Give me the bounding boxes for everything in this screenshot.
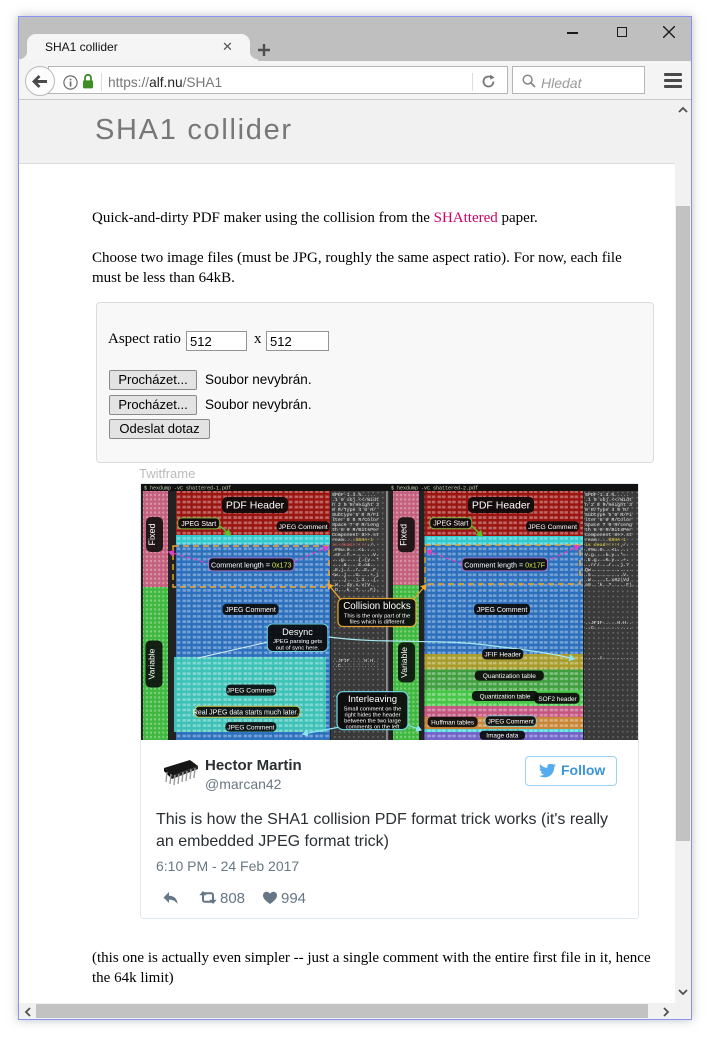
svg-text:Huffman tables: Huffman tables: [431, 719, 474, 726]
svg-text:files which is different: files which is different: [350, 620, 405, 626]
svg-text:Fixed: Fixed: [399, 524, 409, 546]
svg-text:Collision blocks: Collision blocks: [343, 601, 411, 612]
svg-text:PDF Header: PDF Header: [472, 500, 531, 512]
svg-text:JPEG Start: JPEG Start: [181, 521, 216, 528]
svg-text:Quantization table: Quantization table: [483, 673, 536, 680]
svg-text:Variable: Variable: [399, 647, 409, 678]
svg-text:JPEG Comment: JPEG Comment: [488, 719, 534, 726]
svg-text:out of sync here.: out of sync here.: [276, 645, 320, 651]
svg-text:JPEG Comment: JPEG Comment: [225, 607, 276, 614]
svg-text:..C.............: ..C.............: [332, 663, 379, 669]
svg-text:a0..'k..?.....F).: a0..'k..?.....F).: [585, 582, 635, 588]
svg-text:..C.............: ..C.............: [585, 625, 632, 631]
svg-text:$ hexdump -vC shattered-1.pdf: $ hexdump -vC shattered-1.pdf: [144, 485, 231, 491]
svg-text:Real JPEG data starts much lat: Real JPEG data starts much later...: [193, 709, 302, 716]
svg-text:Quantization table: Quantization table: [480, 694, 531, 701]
svg-text:This is the only part of the: This is the only part of the: [344, 613, 410, 619]
svg-text:.O...k..?....F).: .O...k..?....F).: [332, 587, 379, 593]
svg-text:SOF2 header: SOF2 header: [538, 696, 577, 703]
svg-text:Variable: Variable: [146, 648, 156, 679]
svg-text:$ hexdump -vC shattered-2.pdf: $ hexdump -vC shattered-2.pdf: [391, 485, 478, 491]
svg-text:JPEG parsing gets: JPEG parsing gets: [273, 639, 322, 645]
svg-text:JPEG Comment: JPEG Comment: [227, 688, 276, 695]
svg-text:JPEG Comment: JPEG Comment: [227, 724, 274, 731]
svg-text:JPEG Comment: JPEG Comment: [279, 524, 328, 531]
svg-text:Fixed: Fixed: [147, 523, 157, 545]
svg-text:Image data: Image data: [486, 733, 518, 740]
svg-text:JPEG Comment: JPEG Comment: [528, 524, 577, 531]
svg-text:.....c..........: .....c..........: [585, 656, 632, 661]
svg-text:Interleaving: Interleaving: [348, 694, 397, 705]
svg-text:JPEG Start: JPEG Start: [433, 521, 468, 528]
svg-text:Comment length = 0x17F: Comment length = 0x17F: [464, 560, 546, 569]
svg-text:JPEG Comment: JPEG Comment: [477, 607, 528, 614]
svg-text:Comment length = 0x173: Comment length = 0x173: [211, 560, 292, 569]
svg-text:comments on the left: comments on the left: [346, 724, 400, 730]
svg-text:JFIF Header: JFIF Header: [484, 652, 521, 659]
svg-text:PDF Header: PDF Header: [226, 500, 285, 512]
svg-text:Desync: Desync: [282, 627, 313, 637]
